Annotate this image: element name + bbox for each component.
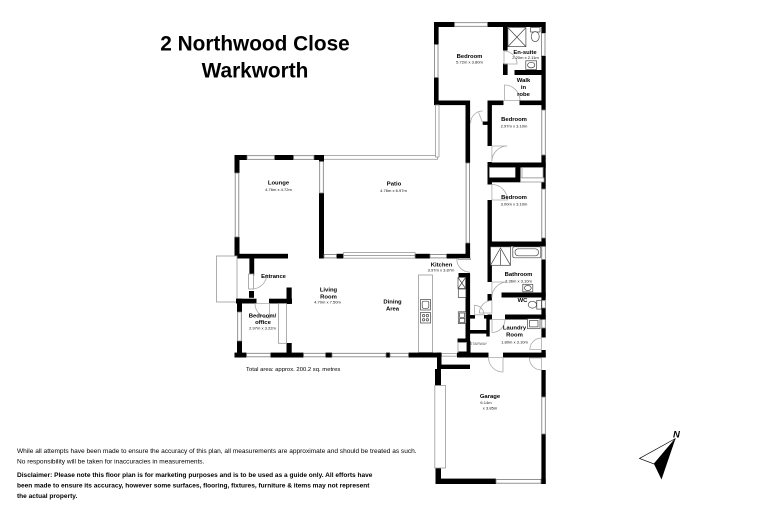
svg-text:robe: robe	[517, 92, 530, 98]
svg-text:Dining: Dining	[383, 300, 402, 306]
svg-text:Entrance: Entrance	[261, 274, 287, 280]
svg-text:Bathroom: Bathroom	[505, 272, 533, 278]
svg-text:While all attempts have been m: While all attempts have been made to ens…	[17, 448, 417, 455]
svg-text:2.97m x 3.10m: 2.97m x 3.10m	[501, 124, 528, 129]
svg-text:No responsibility will be take: No responsibility will be taken for inac…	[17, 459, 205, 466]
svg-text:2 Northwood Close: 2 Northwood Close	[160, 33, 350, 56]
svg-text:STAIRWAY: STAIRWAY	[470, 342, 488, 346]
svg-text:the actual property.: the actual property.	[17, 493, 77, 500]
svg-text:Warkworth: Warkworth	[202, 60, 309, 83]
svg-text:been made to ensure its accura: been made to ensure its accuracy, howeve…	[17, 483, 370, 490]
svg-text:N: N	[673, 430, 681, 441]
svg-text:1.80m x 3.10m: 1.80m x 3.10m	[501, 340, 528, 345]
svg-text:4.76m x 4.72m: 4.76m x 4.72m	[265, 187, 292, 192]
svg-text:Living: Living	[320, 288, 338, 294]
svg-text:6.14m: 6.14m	[480, 400, 492, 405]
svg-text:3.00m x 3.10m: 3.00m x 3.10m	[501, 202, 528, 207]
svg-text:Area: Area	[386, 307, 400, 313]
svg-text:Walk: Walk	[517, 78, 531, 84]
svg-text:Lounge: Lounge	[268, 181, 290, 187]
svg-text:WC: WC	[518, 298, 529, 304]
svg-text:Bedroom: Bedroom	[501, 117, 527, 123]
svg-text:2.97m x 3.22m: 2.97m x 3.22m	[249, 326, 276, 331]
svg-text:Laundry: Laundry	[503, 326, 527, 332]
svg-text:5.72m x 3.80m: 5.72m x 3.80m	[456, 59, 483, 64]
svg-text:Disclaimer: Please note this f: Disclaimer: Please note this floor plan …	[17, 472, 373, 479]
svg-text:Room: Room	[506, 333, 523, 339]
svg-text:2.20m x 2.11m: 2.20m x 2.11m	[512, 55, 539, 60]
svg-text:Total area: approx. 200.2 sq.: Total area: approx. 200.2 sq. metres	[246, 367, 340, 373]
svg-text:2.36m x 3.10m: 2.36m x 3.10m	[505, 279, 532, 284]
svg-text:3.97m x 3.87m: 3.97m x 3.87m	[428, 268, 455, 273]
svg-text:in: in	[521, 85, 527, 91]
svg-text:Bedroom/: Bedroom/	[249, 314, 277, 320]
svg-text:4.76m x 6.97m: 4.76m x 6.97m	[380, 188, 407, 193]
svg-text:x 3.85m: x 3.85m	[483, 406, 498, 411]
svg-text:Patio: Patio	[387, 182, 402, 188]
svg-text:Bedroom: Bedroom	[501, 195, 527, 201]
svg-text:4.70m x 7.50m: 4.70m x 7.50m	[314, 300, 341, 305]
